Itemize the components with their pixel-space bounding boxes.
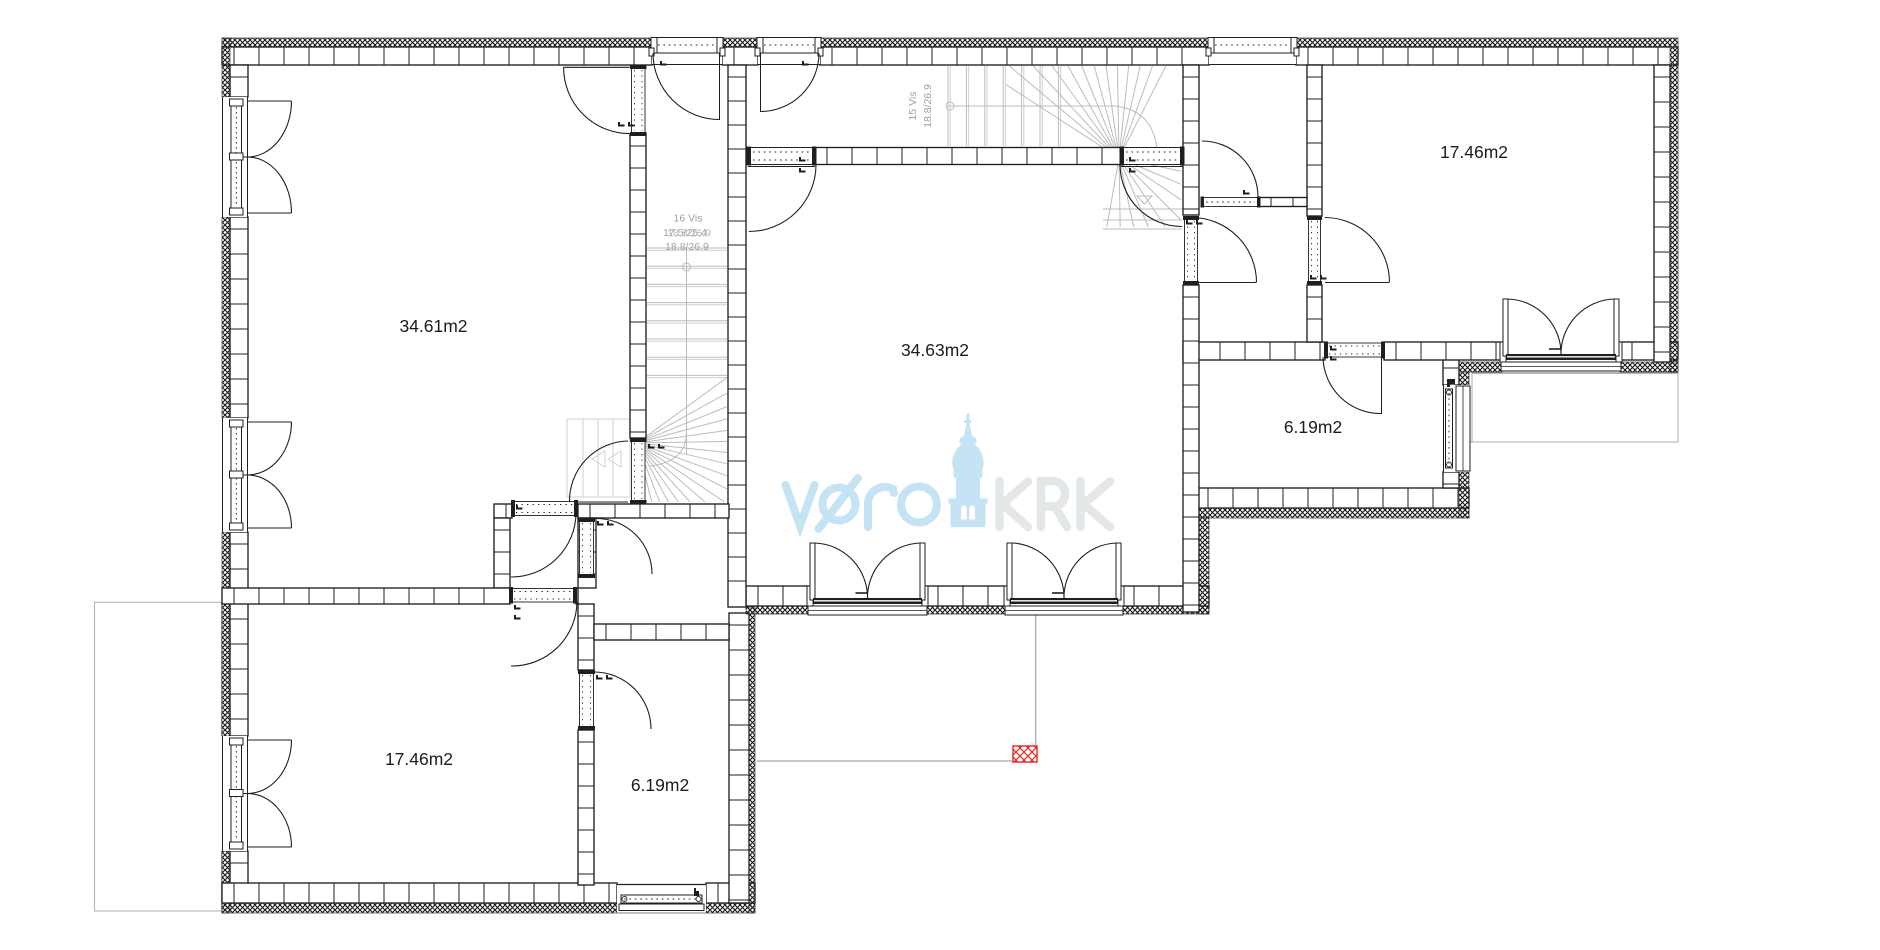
- svg-text:16 Vis: 16 Vis: [674, 213, 703, 225]
- svg-text:34.61m2: 34.61m2: [399, 316, 467, 336]
- svg-text:17.46m2: 17.46m2: [385, 749, 453, 769]
- svg-text:6.19m2: 6.19m2: [631, 775, 689, 795]
- svg-text:34.63m2: 34.63m2: [901, 340, 969, 360]
- svg-text:15 Vis: 15 Vis: [907, 92, 919, 121]
- svg-text:18.8/26.9: 18.8/26.9: [922, 84, 934, 128]
- svg-text:18.8/26.9: 18.8/26.9: [665, 241, 709, 253]
- svg-text:6.19m2: 6.19m2: [1284, 417, 1342, 437]
- svg-text:18.8/26.9: 18.8/26.9: [667, 228, 711, 240]
- svg-text:17.46m2: 17.46m2: [1440, 142, 1508, 162]
